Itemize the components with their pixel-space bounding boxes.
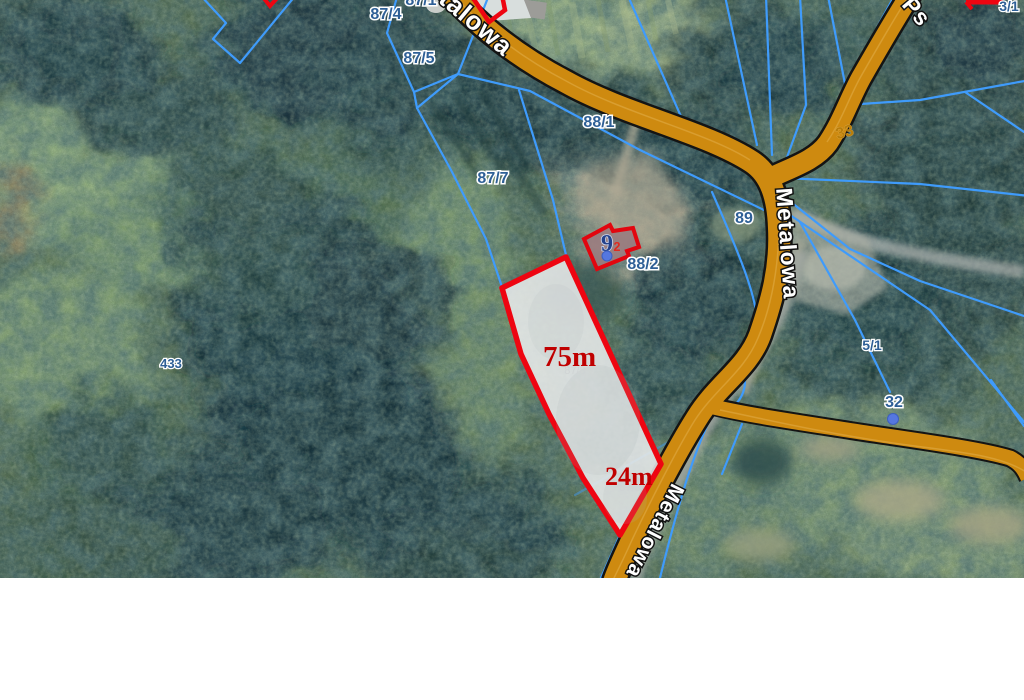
svg-text:32: 32: [885, 394, 903, 411]
svg-text:3/1: 3/1: [999, 0, 1019, 14]
svg-text:87/7: 87/7: [477, 170, 508, 187]
svg-text:433: 433: [160, 356, 182, 371]
svg-text:75m: 75m: [543, 341, 596, 373]
svg-text:88/2: 88/2: [627, 256, 658, 273]
svg-text:24m: 24m: [605, 462, 653, 491]
svg-text:2: 2: [614, 240, 621, 254]
svg-text:5/1: 5/1: [862, 337, 882, 353]
svg-text:87/4: 87/4: [370, 6, 401, 23]
svg-text:89: 89: [735, 210, 753, 227]
svg-text:87/5: 87/5: [403, 50, 434, 67]
svg-text:88/1: 88/1: [583, 114, 614, 131]
